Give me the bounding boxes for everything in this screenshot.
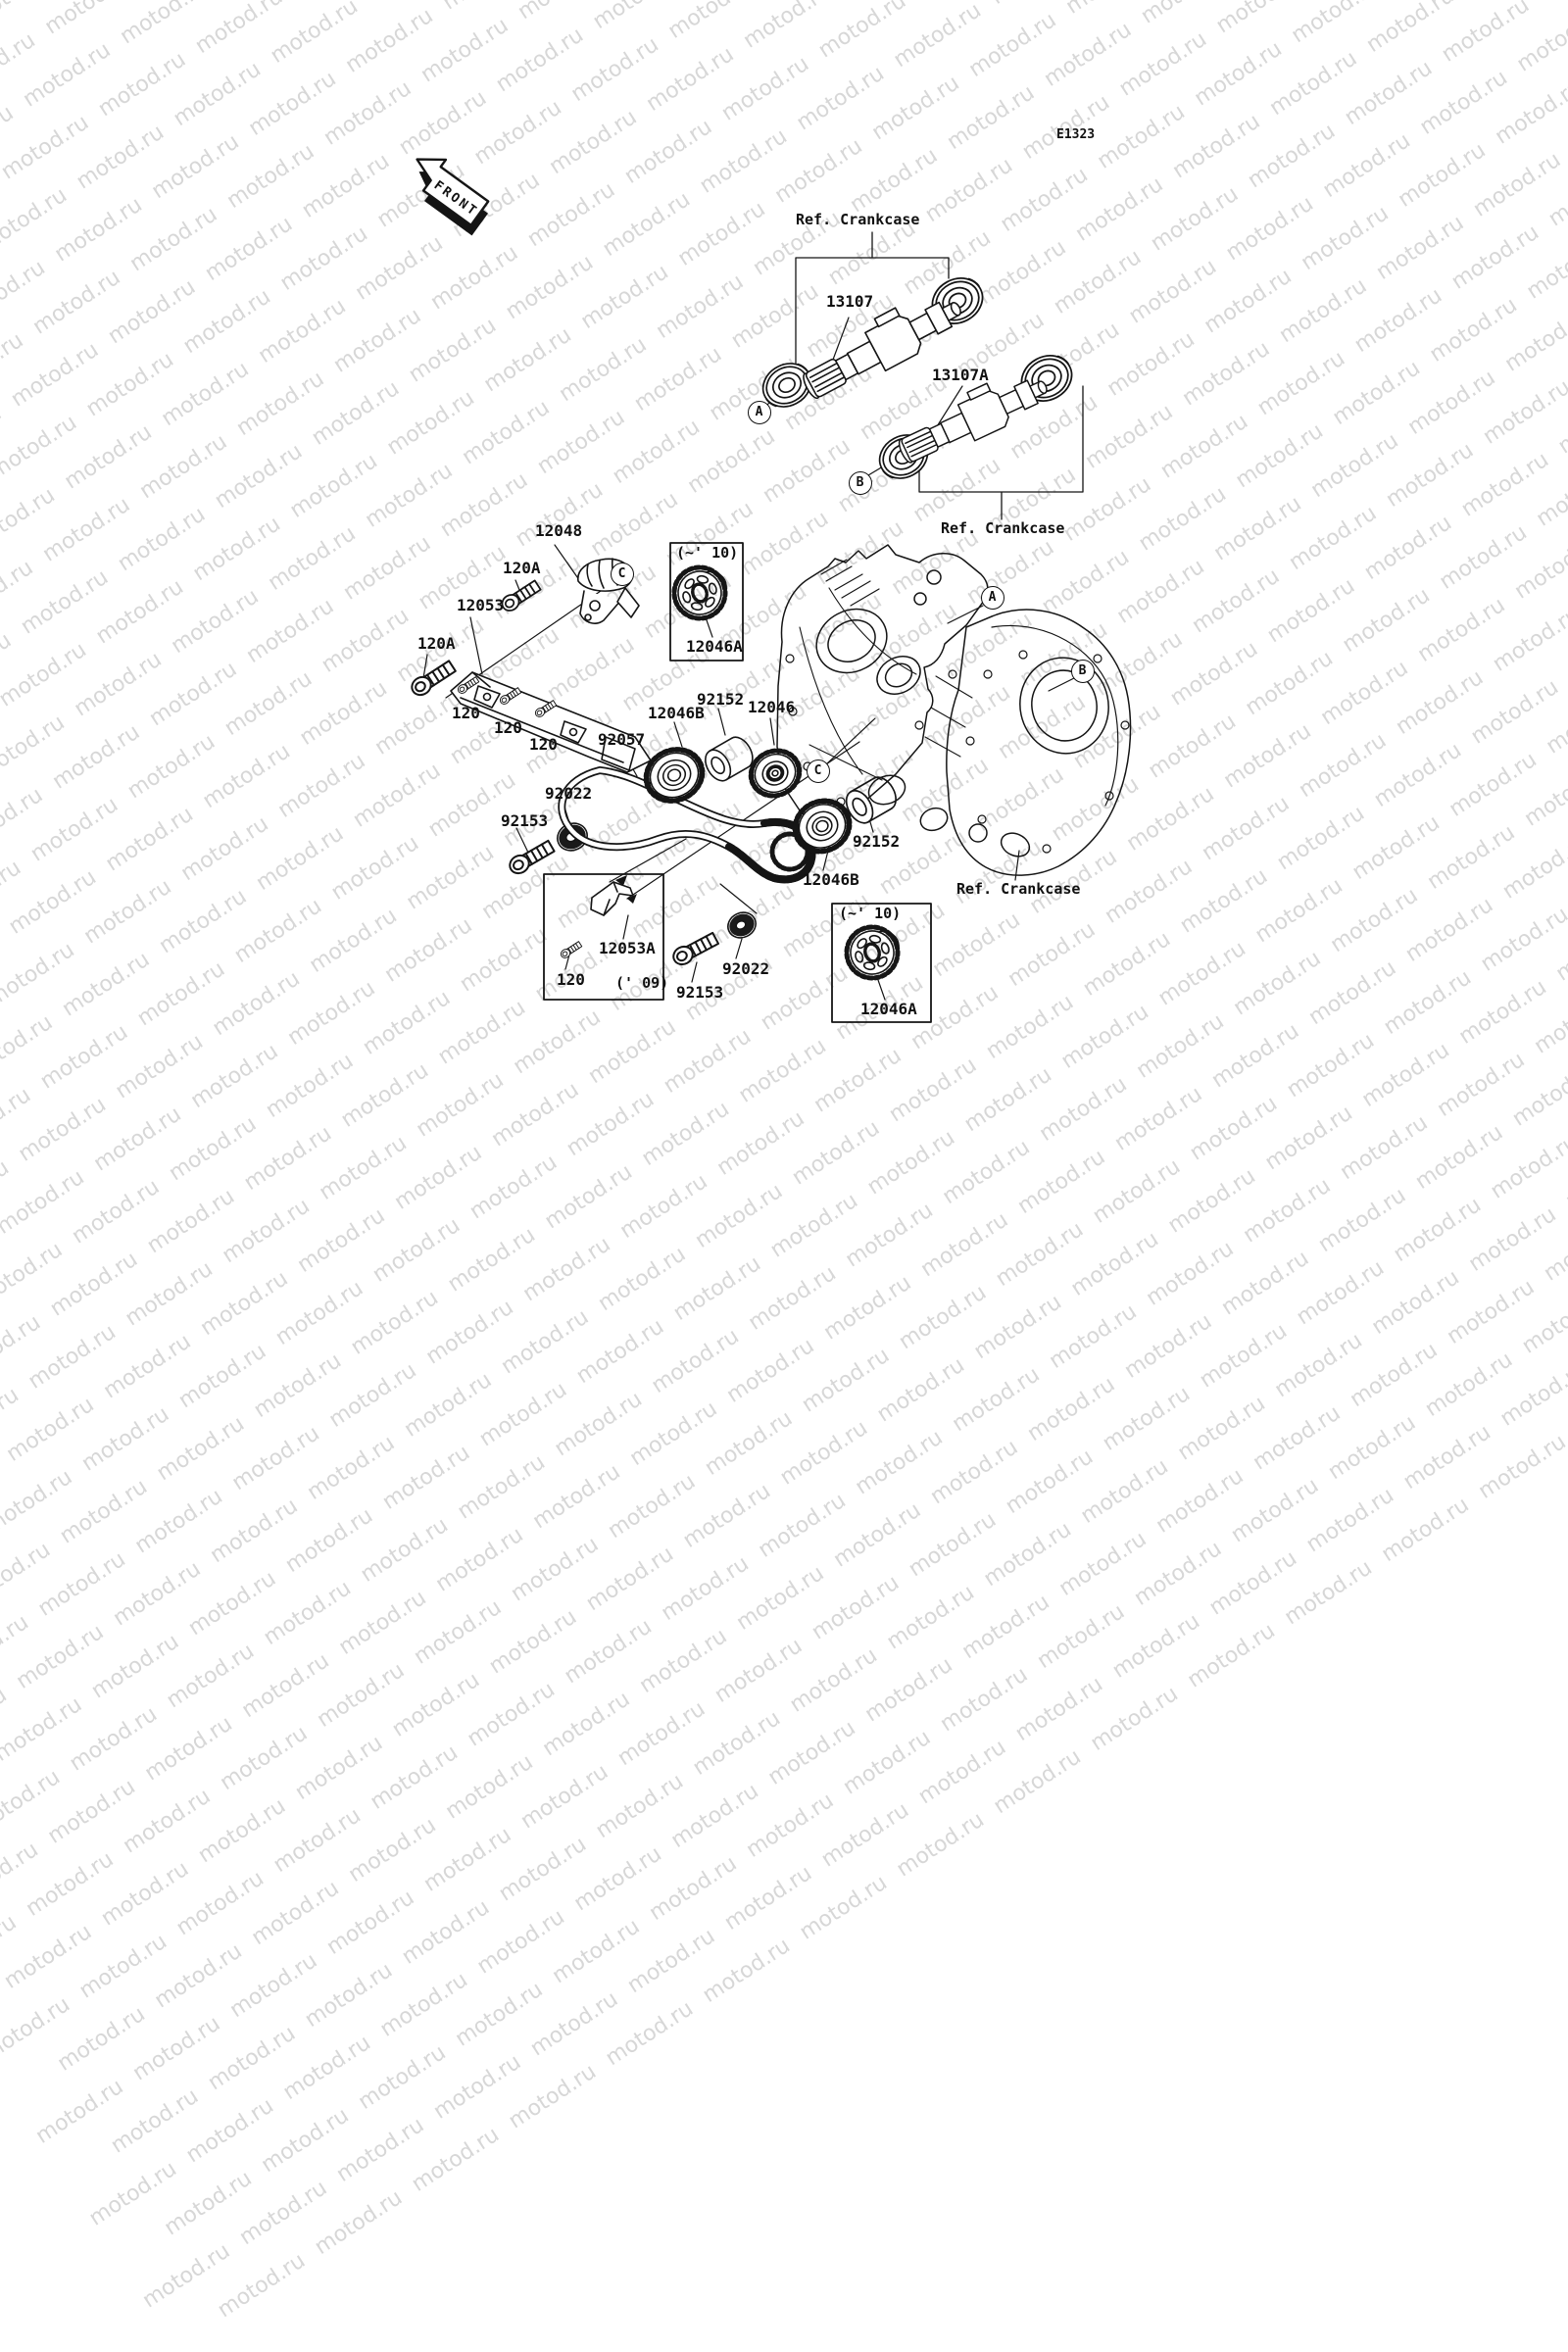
watermark-text: motod.ru (109, 1557, 205, 1632)
watermark-text: motod.ru (0, 1920, 96, 1994)
watermark-text: motod.ru (431, 1523, 527, 1597)
circle-marker-C: C (611, 563, 634, 586)
watermark-text: motod.ru (625, 1396, 721, 1471)
watermark-text: motod.ru (260, 1576, 356, 1650)
watermark-text: motod.ru (701, 1406, 797, 1481)
part-label-92153-upper: 92153 (501, 812, 548, 830)
watermark-text: motod.ru (1293, 1255, 1389, 1330)
watermark-text: motod.ru (97, 1857, 193, 1932)
watermark-text: motod.ru (1390, 1193, 1486, 1267)
watermark-text: motod.ru (53, 2002, 149, 2077)
watermark-text: motod.ru (1108, 1609, 1204, 1684)
watermark-text: motod.ru (182, 2093, 278, 2168)
watermark-text: motod.ru (1324, 1410, 1420, 1485)
watermark-text: motod.ru (138, 2239, 234, 2314)
watermark-text: motod.ru (388, 1668, 484, 1742)
variant-note-10-bottom: (~' 10) (839, 906, 901, 922)
watermark-text: motod.ru (666, 1779, 762, 1853)
watermark-text: motod.ru (796, 1871, 892, 1945)
watermark-text: motod.ru (732, 1561, 828, 1636)
part-label-92022-lower: 92022 (722, 960, 769, 978)
watermark-text: motod.ru (798, 1344, 894, 1418)
watermark-text: motod.ru (691, 1179, 787, 1253)
watermark-text: motod.ru (990, 1744, 1086, 1819)
watermark-text: motod.ru (1142, 1237, 1238, 1311)
watermark-text: motod.ru (160, 2166, 256, 2240)
watermark-text: motod.ru (594, 1242, 690, 1316)
watermark-text: motod.ru (227, 1421, 323, 1495)
part-label-120-2: 120 (494, 719, 522, 737)
watermark-text: motod.ru (776, 1416, 872, 1491)
watermark-text: motod.ru (247, 1876, 343, 1950)
part-label-12048: 12048 (535, 522, 582, 540)
watermark-text: motod.ru (1002, 1445, 1098, 1519)
watermark-text: motod.ru (1023, 1372, 1119, 1446)
watermark-text: motod.ru (957, 1590, 1053, 1664)
watermark-text: motod.ru (12, 1620, 108, 1694)
watermark-text: motod.ru (119, 1785, 215, 1859)
watermark-text: motod.ru (841, 1199, 937, 1273)
part-label-13107A: 13107A (932, 367, 989, 384)
watermark-text: motod.ru (22, 1847, 118, 1922)
watermark-text: motod.ru (0, 1992, 74, 2067)
watermark-text: motod.ru (548, 1914, 644, 1988)
watermark-text: motod.ru (817, 1798, 913, 1873)
watermark-text: motod.ru (980, 1517, 1076, 1592)
washer-92022-lower (724, 908, 760, 943)
watermark-text: motod.ru (538, 1687, 634, 1761)
watermark-text: motod.ru (528, 1459, 624, 1534)
watermark-text: motod.ru (75, 1930, 171, 2004)
watermark-text: motod.ru (495, 1833, 591, 1907)
watermark-text: motod.ru (31, 2075, 127, 2149)
watermark-text: motod.ru (615, 1169, 711, 1244)
watermark-text: motod.ru (1205, 1546, 1301, 1621)
watermark-text: motod.ru (130, 1484, 226, 1558)
watermark-text: motod.ru (699, 1934, 795, 2008)
bolt-120A-left (409, 659, 457, 699)
watermark-text: motod.ru (269, 1803, 366, 1878)
watermark-text: motod.ru (1120, 1309, 1216, 1384)
watermark-text: motod.ru (851, 1426, 947, 1500)
watermark-text: motod.ru (33, 1547, 129, 1622)
watermark-text: motod.ru (604, 1469, 700, 1543)
watermark-text: motod.ru (1077, 1454, 1173, 1529)
watermark-text: motod.ru (744, 1261, 840, 1336)
part-label-12046B-lower: 12046B (803, 871, 859, 889)
watermark-text: motod.ru (1540, 1212, 1568, 1287)
watermark-text: motod.ru (216, 1721, 312, 1795)
watermark-text: motod.ru (0, 1238, 67, 1312)
watermark-text: motod.ru (970, 1290, 1066, 1364)
part-label-12046A-top: 12046A (686, 638, 743, 656)
watermark-text: motod.ru (0, 1455, 2, 1530)
sprocket-12046B-upper (638, 741, 710, 810)
circle-marker-B: B (849, 471, 872, 495)
sprocket-12046 (744, 743, 807, 804)
part-label-120-1: 120 (452, 705, 480, 722)
watermark-text: motod.ru (291, 1731, 387, 1805)
watermark-text: motod.ru (408, 2123, 504, 2197)
part-label-13107: 13107 (826, 293, 873, 311)
variant-note-10-top: (~' 10) (676, 545, 738, 562)
watermark-text: motod.ru (410, 1595, 506, 1670)
watermark-text: motod.ru (0, 1538, 55, 1612)
watermark-text: motod.ru (334, 1586, 430, 1660)
bracket-12053A-drawing (591, 875, 637, 915)
watermark-text: motod.ru (99, 1330, 195, 1404)
watermark-text: motod.ru (121, 1256, 217, 1331)
watermark-text: motod.ru (1196, 1319, 1292, 1394)
watermark-text: motod.ru (0, 1165, 89, 1240)
watermark-text: motod.ru (376, 1968, 472, 2042)
watermark-text: motod.ru (883, 1580, 979, 1654)
watermark-text: motod.ru (250, 1348, 346, 1423)
watermark-text: motod.ru (46, 1248, 142, 1322)
watermark-text: motod.ru (829, 1498, 925, 1573)
watermark-text: motod.ru (1346, 1338, 1442, 1412)
watermark-text: motod.ru (1421, 1347, 1517, 1422)
part-label-120A-left: 120A (417, 635, 456, 653)
watermark-text: motod.ru (2, 1393, 98, 1467)
watermark-text: motod.ru (225, 1948, 321, 2023)
watermark-text: motod.ru (378, 1441, 474, 1515)
watermark-text: motod.ru (645, 1851, 741, 1926)
watermark-text: motod.ru (257, 2103, 353, 2178)
part-label-92153-lower: 92153 (676, 984, 723, 1002)
watermark-text: motod.ru (1054, 1527, 1151, 1601)
front-arrow: FRONT (400, 146, 499, 236)
watermark-text: motod.ru (1086, 1682, 1182, 1756)
bolt-120-box09 (560, 941, 583, 959)
watermark-text: motod.ru (322, 1886, 418, 1960)
bolt-120A-upper (499, 579, 541, 614)
watermark-text: motod.ru (516, 1759, 612, 1834)
watermark-text: motod.ru (454, 1450, 550, 1525)
watermark-text: motod.ru (602, 1996, 698, 2071)
watermark-text: motod.ru (0, 1310, 45, 1385)
watermark-text: motod.ru (1173, 1392, 1269, 1466)
watermark-text: motod.ru (926, 1435, 1022, 1509)
watermark-text: motod.ru (551, 1387, 647, 1461)
watermark-text: motod.ru (400, 1368, 496, 1443)
watermark-text: motod.ru (368, 1213, 465, 1288)
watermark-text: motod.ru (464, 1678, 560, 1752)
watermark-text: motod.ru (905, 1507, 1001, 1582)
circle-marker-A: A (981, 586, 1004, 610)
watermark-text: motod.ru (647, 1324, 743, 1398)
watermark-text: motod.ru (332, 2113, 428, 2187)
watermark-text: motod.ru (710, 1634, 807, 1708)
watermark-text: motod.ru (163, 1639, 259, 1713)
watermark-text: motod.ru (1067, 1227, 1163, 1301)
watermark-text: motod.ru (1496, 1357, 1568, 1432)
watermark-text: motod.ru (0, 1837, 43, 1912)
watermark-text: motod.ru (419, 1823, 515, 1897)
watermark-text: motod.ru (582, 1542, 678, 1616)
watermark-text: motod.ru (485, 1605, 581, 1680)
watermark-text: motod.ru (742, 1788, 838, 1863)
watermark-text: motod.ru (1249, 1400, 1345, 1475)
circle-marker-C: C (807, 759, 830, 783)
watermark-text: motod.ru (357, 1513, 453, 1588)
watermark-text: motod.ru (1183, 1619, 1279, 1693)
watermark-text: motod.ru (153, 1411, 249, 1486)
watermark-text: motod.ru (572, 1314, 668, 1389)
watermark-text: motod.ru (1399, 1420, 1495, 1494)
watermark-text: motod.ru (279, 2031, 375, 2105)
watermark-text: motod.ru (204, 2021, 300, 2095)
watermark-text: motod.ru (635, 1624, 731, 1698)
bolt-92153-upper (507, 839, 556, 877)
watermark-text: motod.ru (0, 1683, 12, 1757)
watermark-text: motod.ru (324, 1358, 420, 1433)
watermark-text: motod.ru (754, 1489, 850, 1563)
watermark-text: motod.ru (293, 1203, 389, 1278)
watermark-text: motod.ru (1227, 1474, 1323, 1548)
watermark-text: motod.ru (766, 1189, 862, 1263)
watermark-text: motod.ru (107, 2084, 203, 2159)
watermark-text: motod.ru (367, 1740, 463, 1815)
watermark-text: motod.ru (150, 1938, 246, 2013)
watermark-text: motod.ru (1099, 1382, 1195, 1456)
part-label-12046: 12046 (748, 699, 795, 716)
ref-label-crankcase-top: Ref. Crankcase (796, 212, 919, 228)
watermark-text: motod.ru (669, 1251, 765, 1326)
watermark-text: motod.ru (1151, 1464, 1248, 1539)
watermark-text: motod.ru (497, 1304, 593, 1379)
watermark-text: motod.ru (206, 1494, 302, 1568)
part-label-92022-upper: 92022 (545, 785, 592, 803)
watermark-text: motod.ru (235, 2176, 331, 2250)
watermark-text: motod.ru (1518, 1285, 1568, 1359)
watermark-text: motod.ru (873, 1352, 969, 1427)
part-label-92057: 92057 (598, 731, 645, 749)
watermark-text: motod.ru (441, 1750, 537, 1825)
watermark-text: motod.ru (819, 1271, 915, 1346)
watermark-text: motod.ru (472, 1905, 568, 1980)
watermark-text: motod.ru (237, 1648, 333, 1723)
watermark-text: motod.ru (140, 1711, 236, 1786)
part-label-120-3: 120 (529, 736, 558, 754)
watermark-text: motod.ru (689, 1706, 785, 1781)
watermark-text: motod.ru (313, 1658, 409, 1733)
part-label-120-4: 120 (557, 971, 585, 989)
watermark-text: motod.ru (722, 1334, 818, 1408)
watermark-text: motod.ru (507, 1532, 603, 1606)
watermark-text: motod.ru (68, 1175, 164, 1249)
watermark-text: motod.ru (592, 1769, 688, 1843)
watermark-text: motod.ru (1270, 1328, 1366, 1402)
watermark-text: motod.ru (214, 2248, 310, 2323)
watermark-text: motod.ru (1367, 1265, 1463, 1340)
watermark-text: motod.ru (860, 1653, 956, 1728)
watermark-text: motod.ru (916, 1207, 1012, 1282)
watermark-text: motod.ru (66, 1702, 162, 1777)
watermark-text: motod.ru (895, 1280, 991, 1354)
watermark-text: motod.ru (1280, 1555, 1376, 1630)
watermark-text: motod.ru (1033, 1599, 1129, 1674)
watermark-text: motod.ru (720, 1861, 816, 1935)
watermark-text: motod.ru (451, 1978, 547, 2052)
watermark-text: motod.ru (303, 1431, 399, 1505)
watermark-text: motod.ru (1377, 1493, 1473, 1567)
watermark-text: motod.ru (560, 1614, 656, 1689)
ref-label-crankcase-mid: Ref. Crankcase (941, 520, 1064, 537)
part-label-12046A-bottom: 12046A (860, 1001, 917, 1018)
chain-guide-12053-drawing (451, 672, 651, 772)
watermark-text: motod.ru (196, 1266, 292, 1341)
watermark-text: motod.ru (1011, 1672, 1107, 1746)
watermark-text: motod.ru (518, 1232, 614, 1306)
watermark-text: motod.ru (992, 1217, 1088, 1292)
watermark-text: motod.ru (56, 1475, 152, 1549)
watermark-text: motod.ru (429, 2050, 525, 2125)
part-label-92152-lower: 92152 (853, 833, 900, 851)
watermark-text: motod.ru (936, 1662, 1032, 1737)
part-label-92152-upper: 92152 (697, 691, 744, 709)
watermark-text: motod.ru (77, 1402, 173, 1477)
part-label-120A-upper: 120A (503, 560, 541, 577)
watermark-text: motod.ru (184, 1566, 280, 1641)
watermark-text: motod.ru (0, 1610, 33, 1685)
watermark-text: motod.ru (311, 2185, 407, 2260)
watermark-text: motod.ru (24, 1320, 121, 1395)
watermark-text: motod.ru (839, 1726, 935, 1800)
watermark-text: motod.ru (914, 1735, 1010, 1809)
watermark-text: motod.ru (0, 1692, 86, 1767)
watermark-text: motod.ru (87, 1630, 183, 1704)
watermark-text: motod.ru (893, 1807, 989, 1882)
watermark-text: motod.ru (786, 1643, 882, 1718)
circle-marker-A: A (748, 401, 771, 424)
watermark-text: motod.ru (174, 1339, 270, 1413)
watermark-text: motod.ru (0, 1383, 24, 1457)
drawing-code: E1323 (1056, 128, 1095, 142)
watermark-text: motod.ru (128, 2012, 224, 2086)
watermark-text: motod.ru (347, 1286, 443, 1360)
watermark-text: motod.ru (475, 1378, 571, 1452)
watermark-text: motod.ru (1302, 1483, 1398, 1557)
gear-12046A-top (667, 560, 734, 624)
part-label-12053A: 12053A (599, 940, 656, 957)
watermark-text: motod.ru (271, 1276, 367, 1350)
part-label-12053: 12053 (457, 597, 504, 614)
gear-12046A-bottom (840, 919, 906, 984)
watermark-text: motod.ru (444, 1223, 540, 1298)
watermark-text: motod.ru (613, 1696, 710, 1771)
watermark-text: motod.ru (43, 1775, 139, 1849)
watermark-text: motod.ru (763, 1716, 859, 1790)
watermark-text: motod.ru (657, 1551, 753, 1626)
watermark-text: motod.ru (218, 1194, 314, 1268)
ref-label-crankcase-bot: Ref. Crankcase (956, 881, 1080, 898)
watermark-text: motod.ru (1045, 1299, 1141, 1374)
watermark-text: motod.ru (1464, 1202, 1560, 1277)
watermark-text: motod.ru (85, 2157, 181, 2231)
watermark-text: motod.ru (354, 2040, 450, 2115)
bolt-92153-lower (670, 931, 719, 968)
diagram-line-art: FRONT (0, 0, 1568, 1176)
circle-marker-B: B (1071, 660, 1095, 683)
watermark-text: motod.ru (398, 1895, 494, 1970)
watermark-text: motod.ru (281, 1503, 377, 1578)
parts-diagram-page: { "watermark": { "text": "motod.ru" }, "… (0, 0, 1568, 1176)
watermark-text: motod.ru (948, 1362, 1044, 1437)
watermark-text: motod.ru (143, 1184, 239, 1258)
watermark-text: motod.ru (1217, 1247, 1313, 1321)
watermark-text: motod.ru (344, 1813, 440, 1887)
watermark-text: motod.ru (679, 1479, 775, 1553)
watermark-text: motod.ru (0, 1910, 22, 1984)
variant-note-09: (' 09) (615, 975, 668, 992)
watermark-text: motod.ru (1443, 1275, 1539, 1349)
watermark-text: motod.ru (808, 1571, 904, 1645)
watermark-text: motod.ru (194, 1793, 290, 1868)
watermark-text: motod.ru (172, 1866, 269, 1940)
watermark-text: motod.ru (1130, 1537, 1226, 1611)
watermark-text: motod.ru (1474, 1430, 1568, 1504)
watermark-text: motod.ru (526, 1986, 622, 2061)
watermark-text: motod.ru (623, 1924, 719, 1998)
watermark-text: motod.ru (1239, 1173, 1335, 1248)
watermark-text: motod.ru (421, 1296, 517, 1370)
watermark-text: motod.ru (1314, 1183, 1410, 1257)
watermark-text: motod.ru (0, 1765, 65, 1839)
watermark-text: motod.ru (505, 2060, 601, 2134)
watermark-text: motod.ru (569, 1841, 665, 1916)
watermark-text: motod.ru (0, 1465, 76, 1540)
watermark-text: motod.ru (301, 1958, 397, 2033)
